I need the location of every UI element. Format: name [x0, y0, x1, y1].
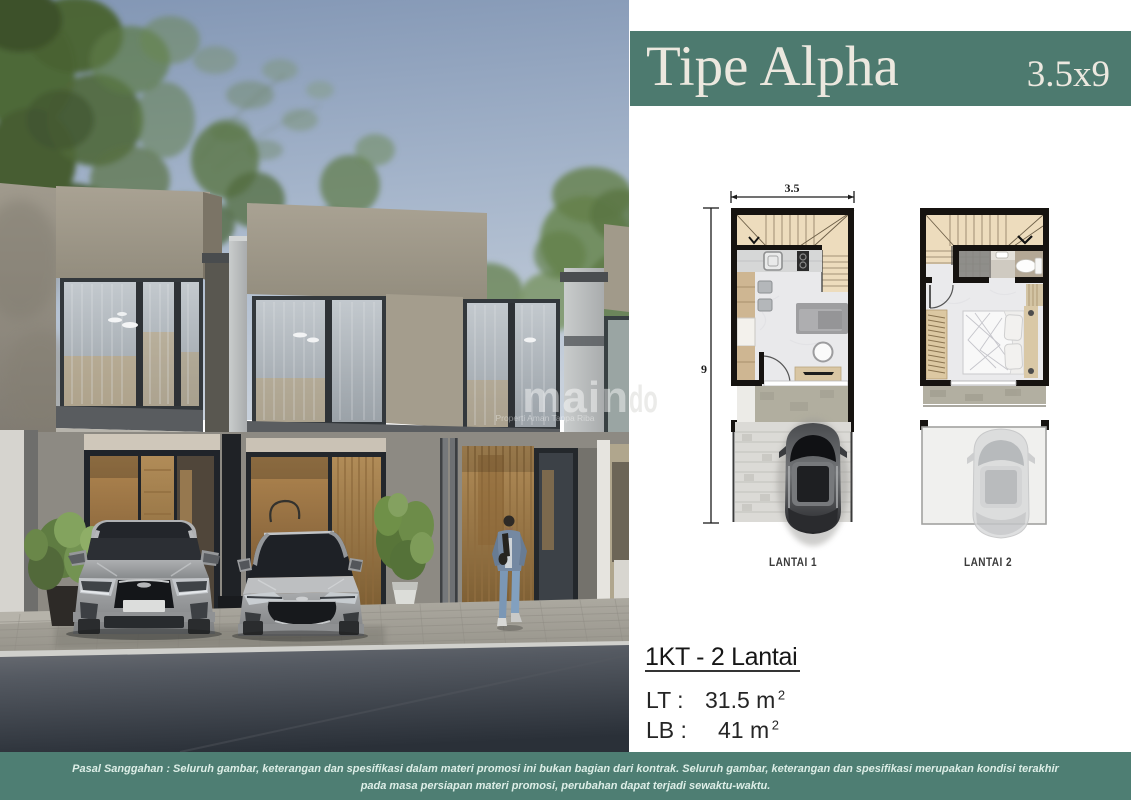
svg-text:LANTAI 1: LANTAI 1	[769, 557, 817, 569]
svg-text:3.5: 3.5	[785, 181, 800, 195]
svg-text:Properti Aman Tanpa Riba: Properti Aman Tanpa Riba	[495, 413, 594, 423]
svg-text:9: 9	[701, 362, 707, 376]
svg-text:LANTAI 2: LANTAI 2	[964, 557, 1012, 569]
